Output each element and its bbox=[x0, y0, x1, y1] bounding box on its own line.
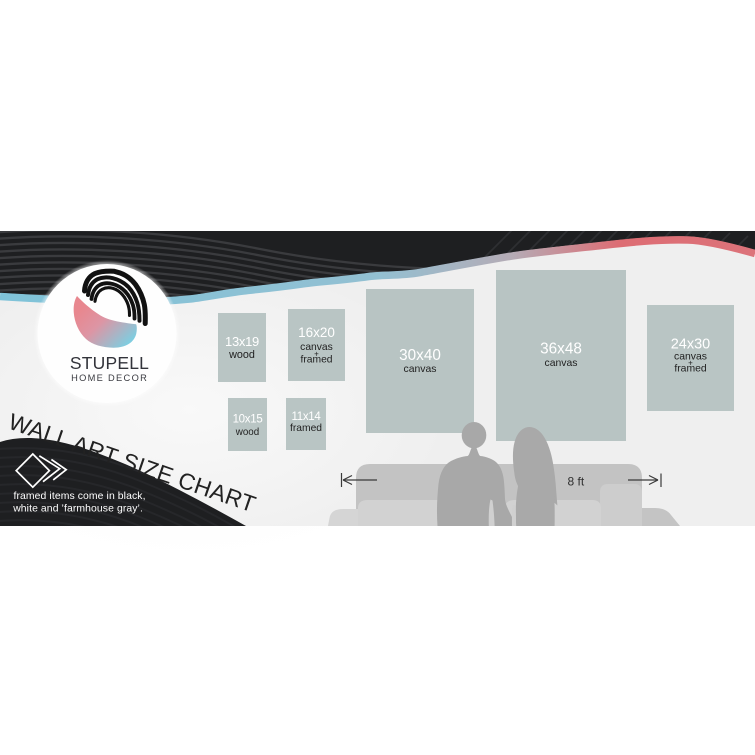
svg-text:10x15: 10x15 bbox=[233, 414, 263, 426]
svg-text:white and ’farmhouse gray’.: white and ’farmhouse gray’. bbox=[12, 503, 143, 514]
svg-text:16x20: 16x20 bbox=[298, 325, 335, 340]
svg-text:30x40: 30x40 bbox=[399, 347, 441, 364]
svg-text:8 ft: 8 ft bbox=[568, 475, 585, 489]
svg-text:STUPELL: STUPELL bbox=[70, 353, 149, 373]
svg-text:HOME DECOR: HOME DECOR bbox=[71, 373, 148, 383]
svg-text:wood: wood bbox=[235, 427, 259, 438]
svg-text:24x30: 24x30 bbox=[671, 337, 711, 353]
svg-text:framed: framed bbox=[300, 355, 332, 366]
svg-text:framed items come in black,: framed items come in black, bbox=[14, 491, 146, 502]
svg-text:framed: framed bbox=[674, 364, 707, 375]
svg-text:canvas: canvas bbox=[545, 358, 578, 369]
svg-text:canvas: canvas bbox=[404, 364, 437, 375]
svg-text:13x19: 13x19 bbox=[225, 334, 259, 349]
svg-text:11x14: 11x14 bbox=[292, 411, 322, 423]
svg-text:wood: wood bbox=[228, 349, 255, 361]
svg-text:36x48: 36x48 bbox=[540, 341, 582, 358]
svg-text:framed: framed bbox=[290, 423, 322, 434]
